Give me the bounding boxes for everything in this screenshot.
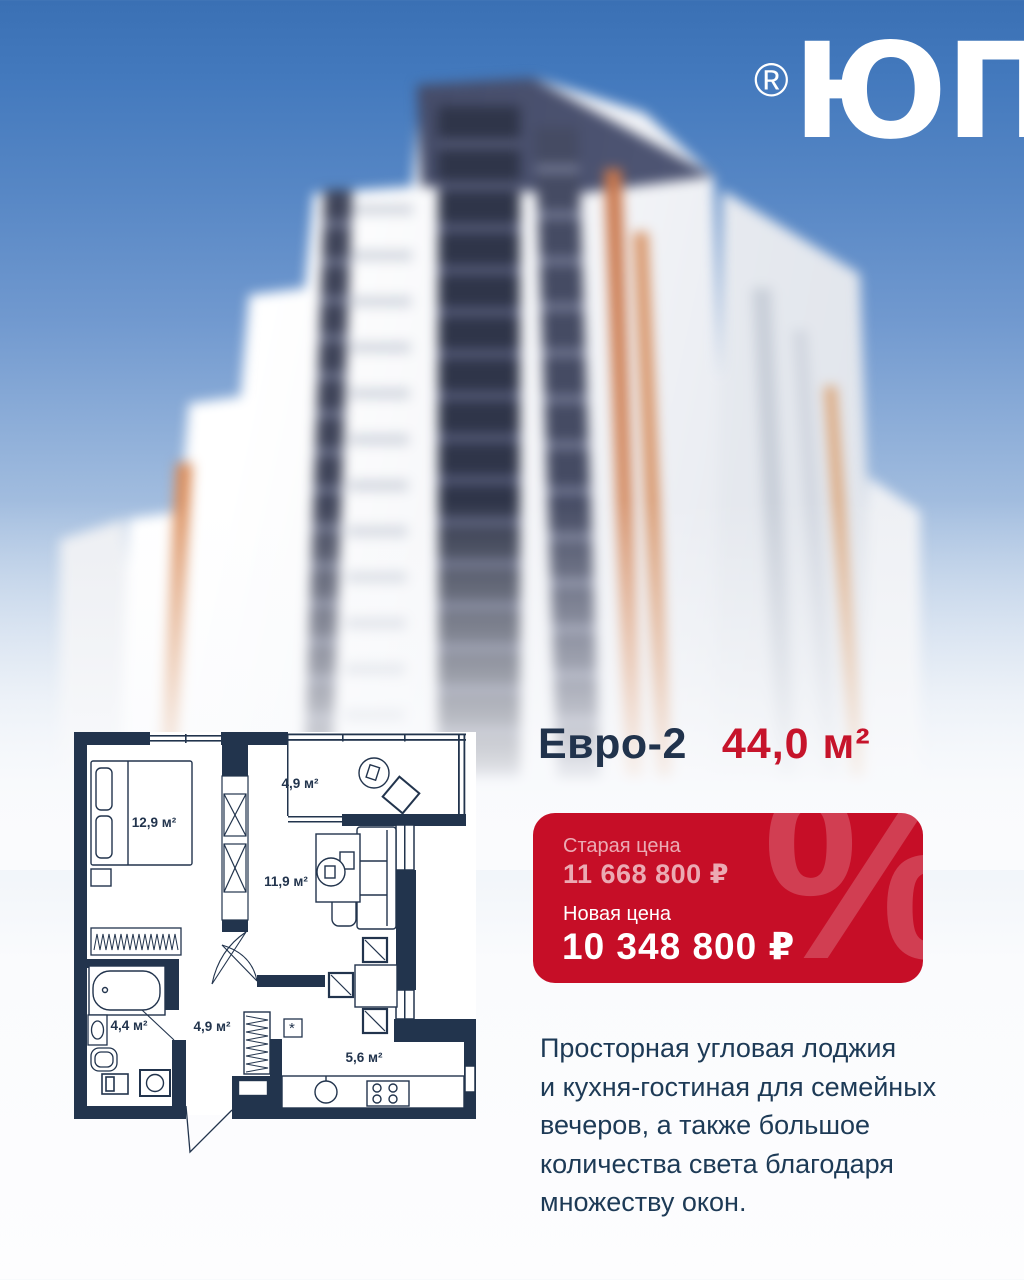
listing-title: Евро-2 44,0 м² [538, 720, 871, 769]
old-price-label: Старая цена [563, 835, 681, 858]
room-label-bathroom: 4,4 м² [111, 1018, 149, 1033]
room-label-living: 11,9 м² [264, 874, 308, 889]
cabinet-icon [102, 1074, 128, 1094]
brand-logo: ® ЮП [754, 26, 1024, 158]
registered-trademark-icon: ® [754, 56, 789, 158]
old-price-value: 11 668 800 ₽ [563, 859, 729, 890]
toilet-icon [91, 1048, 117, 1071]
floor-plan: * 12,9 м² 4,9 м² 11,9 м² 4,4 м² 4,9 м² 5… [74, 732, 476, 1164]
apartment-area-value: 44,0 м² [722, 720, 871, 769]
price-card: % Старая цена 11 668 800 ₽ Новая цена 10… [533, 813, 923, 983]
room-label-bedroom: 12,9 м² [132, 815, 177, 830]
svg-text:*: * [289, 1020, 295, 1037]
room-label-loggia: 4,9 м² [282, 776, 320, 791]
desk-icon [316, 834, 360, 902]
brand-logo-text: ЮП [793, 26, 1024, 158]
new-price-label: Новая цена [563, 903, 671, 926]
sink-icon [88, 1015, 107, 1045]
apartment-type-label: Евро-2 [538, 720, 687, 769]
closet-hangers-icon [91, 928, 181, 955]
kitchen-counter-icon [282, 1076, 464, 1108]
promo-poster: { "logo": { "trademark": "®", "text": "Ю… [0, 0, 1024, 1280]
room-label-kitchen: 5,6 м² [346, 1050, 384, 1065]
room-label-hallway: 4,9 м² [194, 1019, 232, 1034]
vent-shaft-marker: * [284, 1019, 302, 1037]
bathtub-icon [89, 966, 165, 1015]
listing-description: Просторная угловая лоджия и кухня-гостин… [540, 1029, 1010, 1222]
washing-machine-icon [140, 1070, 170, 1096]
stove-icon [367, 1081, 409, 1106]
wardrobe-icon [222, 776, 248, 920]
new-price-value: 10 348 800 ₽ [562, 925, 795, 968]
